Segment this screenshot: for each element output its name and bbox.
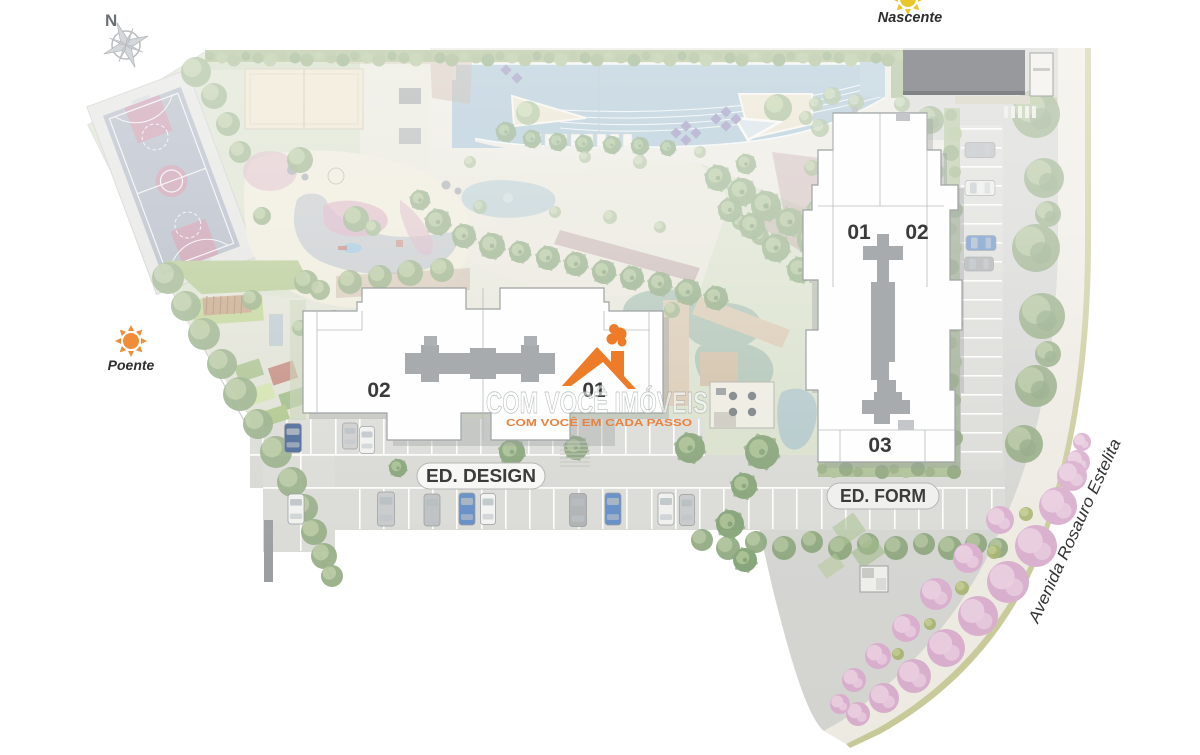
svg-text:02: 02 [367,379,390,402]
svg-text:Poente: Poente [108,357,155,373]
svg-text:ED. DESIGN: ED. DESIGN [426,465,536,486]
svg-text:ED. FORM: ED. FORM [840,485,926,506]
svg-text:COM VOCÊ EM CADA PASSO: COM VOCÊ EM CADA PASSO [506,416,692,429]
svg-text:N: N [105,11,117,30]
svg-text:01: 01 [847,221,871,244]
svg-text:03: 03 [868,434,891,457]
svg-text:02: 02 [905,221,928,244]
svg-text:Nascente: Nascente [878,10,942,26]
svg-text:COM VOCÊ IMÓVEIS: COM VOCÊ IMÓVEIS [486,384,708,420]
